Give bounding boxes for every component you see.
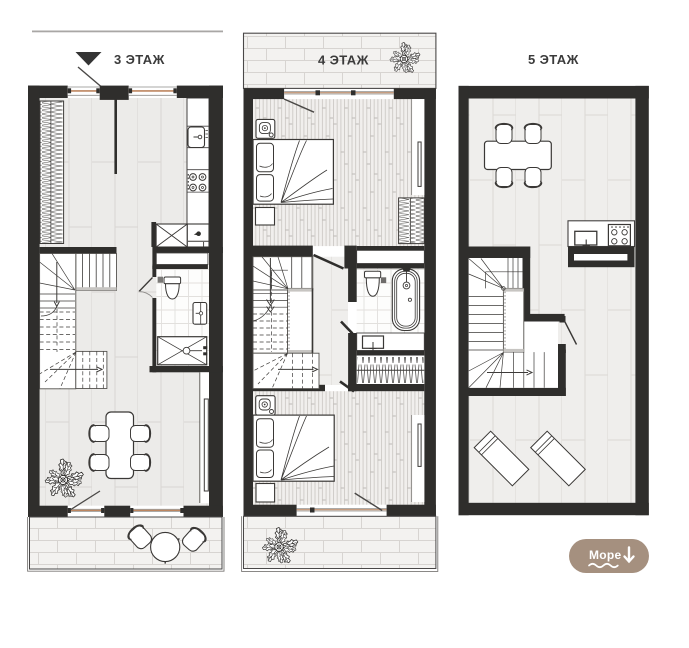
svg-text:5 ЭТАЖ: 5 ЭТАЖ — [528, 52, 579, 67]
svg-text:3 ЭТАЖ: 3 ЭТАЖ — [114, 52, 165, 67]
svg-text:4 ЭТАЖ: 4 ЭТАЖ — [318, 53, 369, 68]
svg-text:Море: Море — [589, 548, 622, 562]
